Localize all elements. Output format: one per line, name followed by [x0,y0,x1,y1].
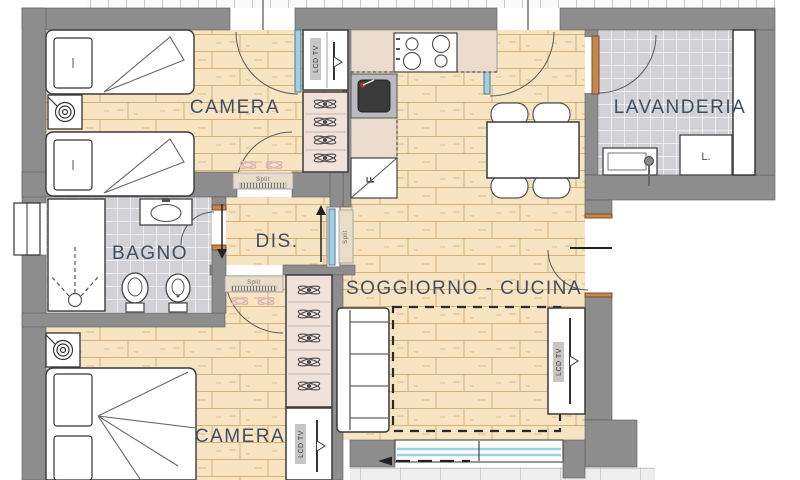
dining-table [487,122,579,178]
camera-bottom-label: CAMERA [195,426,285,447]
wall-lavanderia-bottom [585,175,775,200]
wall-right-corner [585,420,637,467]
wall-top-2 [295,8,497,30]
wardrobe-camera-top [303,92,348,172]
split-label: Split [247,280,261,286]
bagno-label: BAGNO [112,243,188,264]
wall-right-2 [585,293,612,420]
kitchen-sink [351,74,397,118]
shower [48,199,105,311]
wall-bagno-bottom [22,313,225,327]
entrance-door-opening [585,218,612,293]
bidet [166,274,190,312]
bagno-door-frame-top [212,205,226,210]
tap-icon [162,198,170,202]
balcony-sliding-door [395,440,563,462]
radiator [46,333,80,367]
pillow [54,374,92,426]
stove [394,33,457,72]
wall-top-3 [560,8,775,30]
single-bed-1 [46,30,194,94]
single-bed-2 [46,132,194,196]
split-vent-icon [232,286,276,291]
split-unit-soggiorno: Split [339,210,353,263]
wall-left-lower [22,255,46,480]
tv-label: LCD TV [298,430,305,458]
soggiorno-label: SOGGIORNO - CUCINA [346,278,582,299]
drain-icon [645,157,654,166]
tv-label: LCD TV [556,348,563,376]
split-vent-icon [240,183,286,188]
camera-top-label: CAMERA [190,97,280,118]
wall-top-1 [22,8,230,30]
radiator [48,95,82,129]
bath-sink [140,198,192,225]
double-bed [46,368,196,480]
wall-balcony-right [563,440,585,478]
pocket-door-leaf [329,209,335,265]
tv-cabinet-camera-top: LCD TV [303,30,348,90]
lavanderia-label: LAVANDERIA [614,97,747,118]
entrance-frame-top [585,214,612,218]
dis-label: DIS. [256,231,299,252]
balcony-floor [350,467,655,480]
floor-plan: F LCD TV [0,0,800,480]
toilet [122,273,148,312]
camera-top-entry-door-leaf [295,30,301,92]
tv-cabinet-soggiorno: LCD TV [548,308,585,414]
tv-label: LCD TV [313,45,320,73]
split-label: Split [343,230,349,244]
tv-cabinet-camera-bottom: LCD TV [286,408,332,480]
lavanderia-door-leaf [592,36,599,94]
pillow [54,436,92,480]
fridge-label: F [365,176,377,183]
kitchen-counter-side [351,118,397,158]
wall-lavanderia-right [755,30,775,175]
fridge: F [351,158,397,198]
split-label: Split [256,177,270,183]
wall-dis-bottom-2 [283,265,355,275]
sofa [337,308,389,432]
wardrobe-camera-bottom [286,275,332,407]
exterior-tile-strip [85,0,775,8]
wall-dis-soggiorno-1 [330,172,343,207]
floor-plan-drawing: F LCD TV [0,0,800,480]
wall-lavanderia-left-2 [585,93,598,175]
entrance-frame-bottom [585,293,612,297]
washing-machine: L. [680,135,732,175]
washer-label: L. [701,151,710,163]
